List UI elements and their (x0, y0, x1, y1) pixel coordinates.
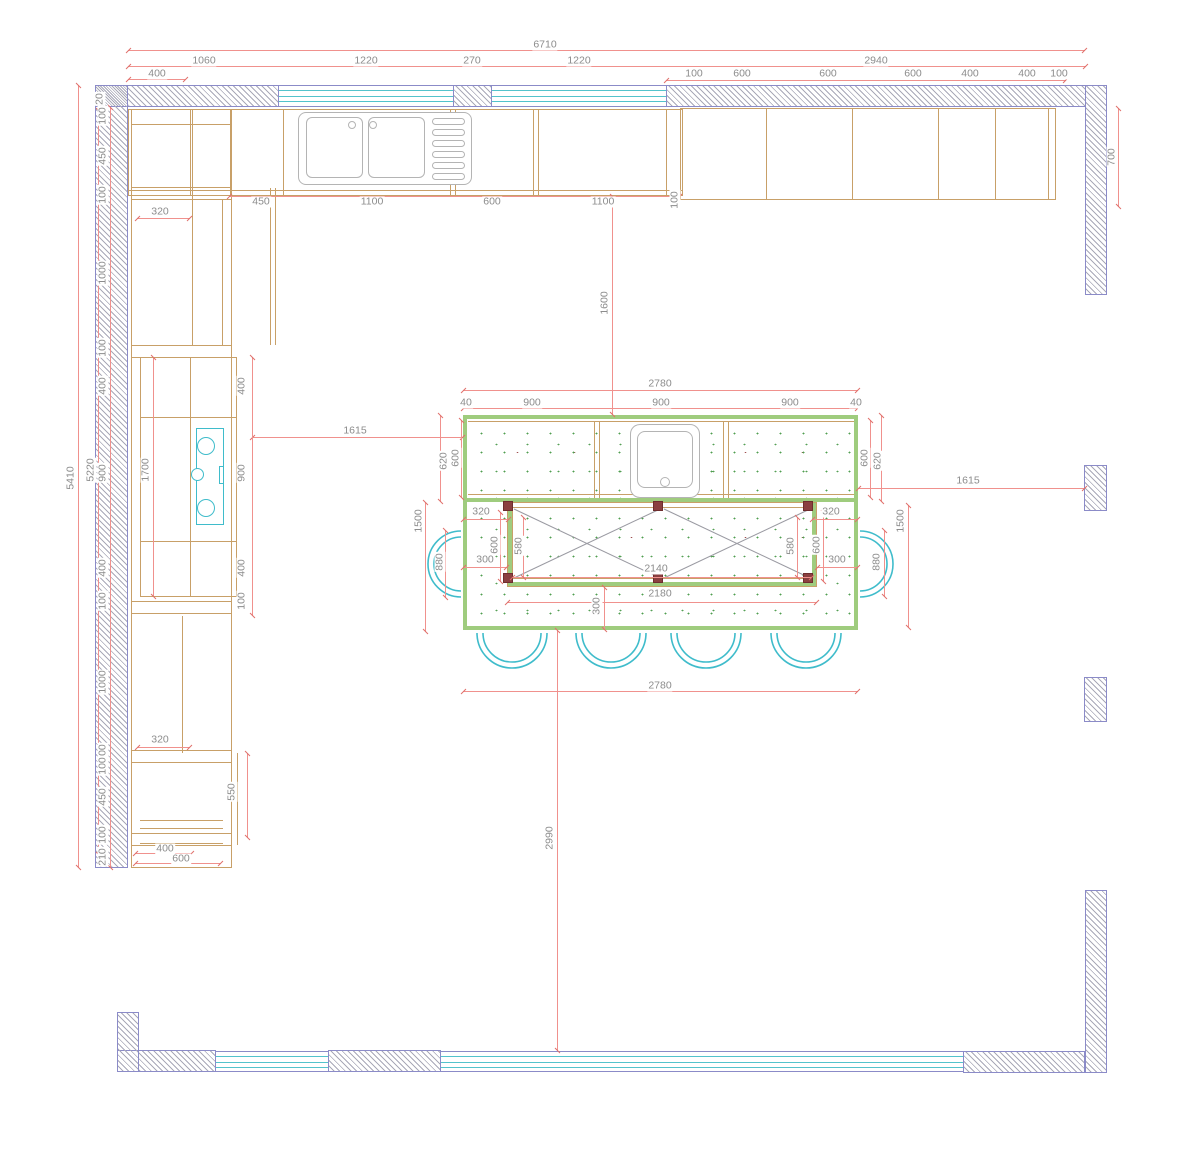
dim-label: 1000 (97, 669, 108, 694)
dim-label: 100 (97, 185, 108, 205)
dim-label: 1000 (97, 260, 108, 285)
dim-label: 900 (780, 397, 800, 408)
dim-label: 1615 (955, 475, 980, 486)
dim-label: 100 (97, 825, 108, 845)
dim-label: 100 (669, 190, 680, 210)
dim-label: 320 (471, 506, 491, 517)
dim-label: 600 (489, 535, 500, 555)
dim-label: 900 (651, 397, 671, 408)
dim-label: 1500 (895, 508, 906, 533)
dim-label: 1700 (140, 457, 151, 482)
dim-label: 100 (97, 756, 108, 776)
sink-drainer-rib (432, 140, 465, 147)
dim-label: 1220 (566, 55, 591, 66)
dimension-line (153, 357, 154, 597)
dim-label: 100 (97, 106, 108, 126)
dim-label: 400 (147, 68, 167, 79)
dim-label: 550 (226, 782, 237, 802)
chair-bottom (677, 633, 735, 662)
dim-label: 450 (97, 787, 108, 807)
dim-label: 1500 (413, 508, 424, 533)
cooktop-control-notch (219, 466, 224, 484)
dim-label: 20 (94, 92, 105, 106)
dimension-line (247, 753, 248, 838)
dimension-line (604, 587, 605, 630)
island-post (503, 501, 513, 511)
dim-label: 1220 (353, 55, 378, 66)
dim-label: 400 (97, 376, 108, 396)
dim-label: 900 (236, 463, 247, 483)
dim-label: 900 (522, 397, 542, 408)
faucet-hole-icon (348, 121, 356, 129)
dim-label: 600 (450, 448, 461, 468)
dim-label: 5410 (65, 465, 76, 490)
dimension-line (823, 512, 824, 582)
dimension-line (463, 390, 858, 391)
dimension-line (908, 505, 909, 628)
dim-label: 400 (236, 376, 247, 396)
dim-label: 320 (821, 506, 841, 517)
dimension-line (252, 357, 253, 616)
dim-label: 450 (97, 146, 108, 166)
dim-label: 600 (903, 68, 923, 79)
dim-label: 40 (849, 397, 863, 408)
dim-label: 2780 (647, 680, 672, 691)
island-sink-drain-icon (660, 477, 670, 487)
dim-label: 900 (97, 463, 108, 483)
chair-bottom (777, 633, 835, 662)
chair-bottom (582, 633, 640, 662)
dimension-line (137, 218, 190, 219)
dim-label: 2140 (643, 563, 668, 574)
dim-label: 1060 (191, 55, 216, 66)
cooktop-burner-icon (197, 437, 215, 455)
dim-label: 100 (97, 338, 108, 358)
dim-label: 580 (513, 536, 524, 556)
dimension-line (507, 602, 817, 603)
dimension-line (78, 85, 79, 868)
dim-label: 620 (872, 451, 883, 471)
dimension-line (252, 437, 463, 438)
dim-label: 320 (150, 734, 170, 745)
dimension-line (884, 530, 885, 597)
dim-label: 100 (1049, 68, 1069, 79)
dimension-line (1118, 108, 1119, 207)
dim-label: 1600 (599, 290, 610, 315)
dim-label: 450 (251, 196, 271, 207)
sink-drainer-rib (432, 129, 465, 136)
dimension-line (858, 488, 1085, 489)
dimension-line (463, 519, 509, 520)
dim-label: 320 (150, 206, 170, 217)
sink-drainer-rib (432, 162, 465, 169)
dim-label: 400 (97, 558, 108, 578)
dim-label: 400 (236, 558, 247, 578)
dimension-line (512, 577, 812, 578)
dim-label: 600 (811, 535, 822, 555)
cooktop-burner-icon (191, 468, 204, 481)
dimension-line (797, 517, 798, 578)
dimension-line (557, 630, 558, 1051)
dim-label: 100 (97, 591, 108, 611)
cooktop-burner-icon (197, 499, 215, 517)
dimension-line (137, 747, 190, 748)
island-post (803, 501, 813, 511)
dim-label: 400 (1017, 68, 1037, 79)
dim-label: 880 (871, 552, 882, 572)
island-post (653, 501, 663, 511)
dim-label: 600 (171, 853, 191, 864)
faucet-hole-icon (369, 121, 377, 129)
sink-drainer-rib (432, 118, 465, 125)
chair-bottom (483, 633, 541, 662)
dim-label: 2940 (863, 55, 888, 66)
dimension-line (110, 107, 111, 868)
dim-label: 210 (97, 847, 108, 867)
dim-label: 300 (475, 554, 495, 565)
dim-label: 1615 (342, 425, 367, 436)
dim-label: 5220 (85, 457, 96, 482)
dimension-line (128, 66, 1086, 67)
sink-drainer-rib (432, 151, 465, 158)
dim-label: 580 (785, 536, 796, 556)
dim-label: 600 (859, 448, 870, 468)
dim-label: 2180 (647, 588, 672, 599)
dim-label: 2780 (647, 378, 672, 389)
dim-label: 270 (462, 55, 482, 66)
dim-label: 40 (459, 397, 473, 408)
dim-label: 6710 (532, 39, 557, 50)
dim-label: 880 (434, 552, 445, 572)
dimension-line (612, 196, 613, 415)
dim-label: 600 (818, 68, 838, 79)
dim-label: 400 (960, 68, 980, 79)
dimension-line (425, 502, 426, 632)
dim-label: 2990 (544, 825, 555, 850)
floor-plan: 6710106012202701220294040010060060060040… (0, 0, 1200, 1156)
sink-drainer-rib (432, 173, 465, 180)
dim-label: 100 (684, 68, 704, 79)
dim-label: 700 (1106, 147, 1117, 167)
dim-label: 1100 (591, 196, 616, 207)
dim-label: 600 (732, 68, 752, 79)
dim-label: 600 (482, 196, 502, 207)
dim-label: 300 (591, 596, 602, 616)
dimension-line (128, 50, 1085, 51)
dim-label: 300 (827, 554, 847, 565)
dimension-line (812, 519, 858, 520)
dimension-line (666, 80, 1066, 81)
dim-label: 100 (236, 591, 247, 611)
dim-label: 620 (438, 451, 449, 471)
dim-label: 1100 (360, 196, 385, 207)
